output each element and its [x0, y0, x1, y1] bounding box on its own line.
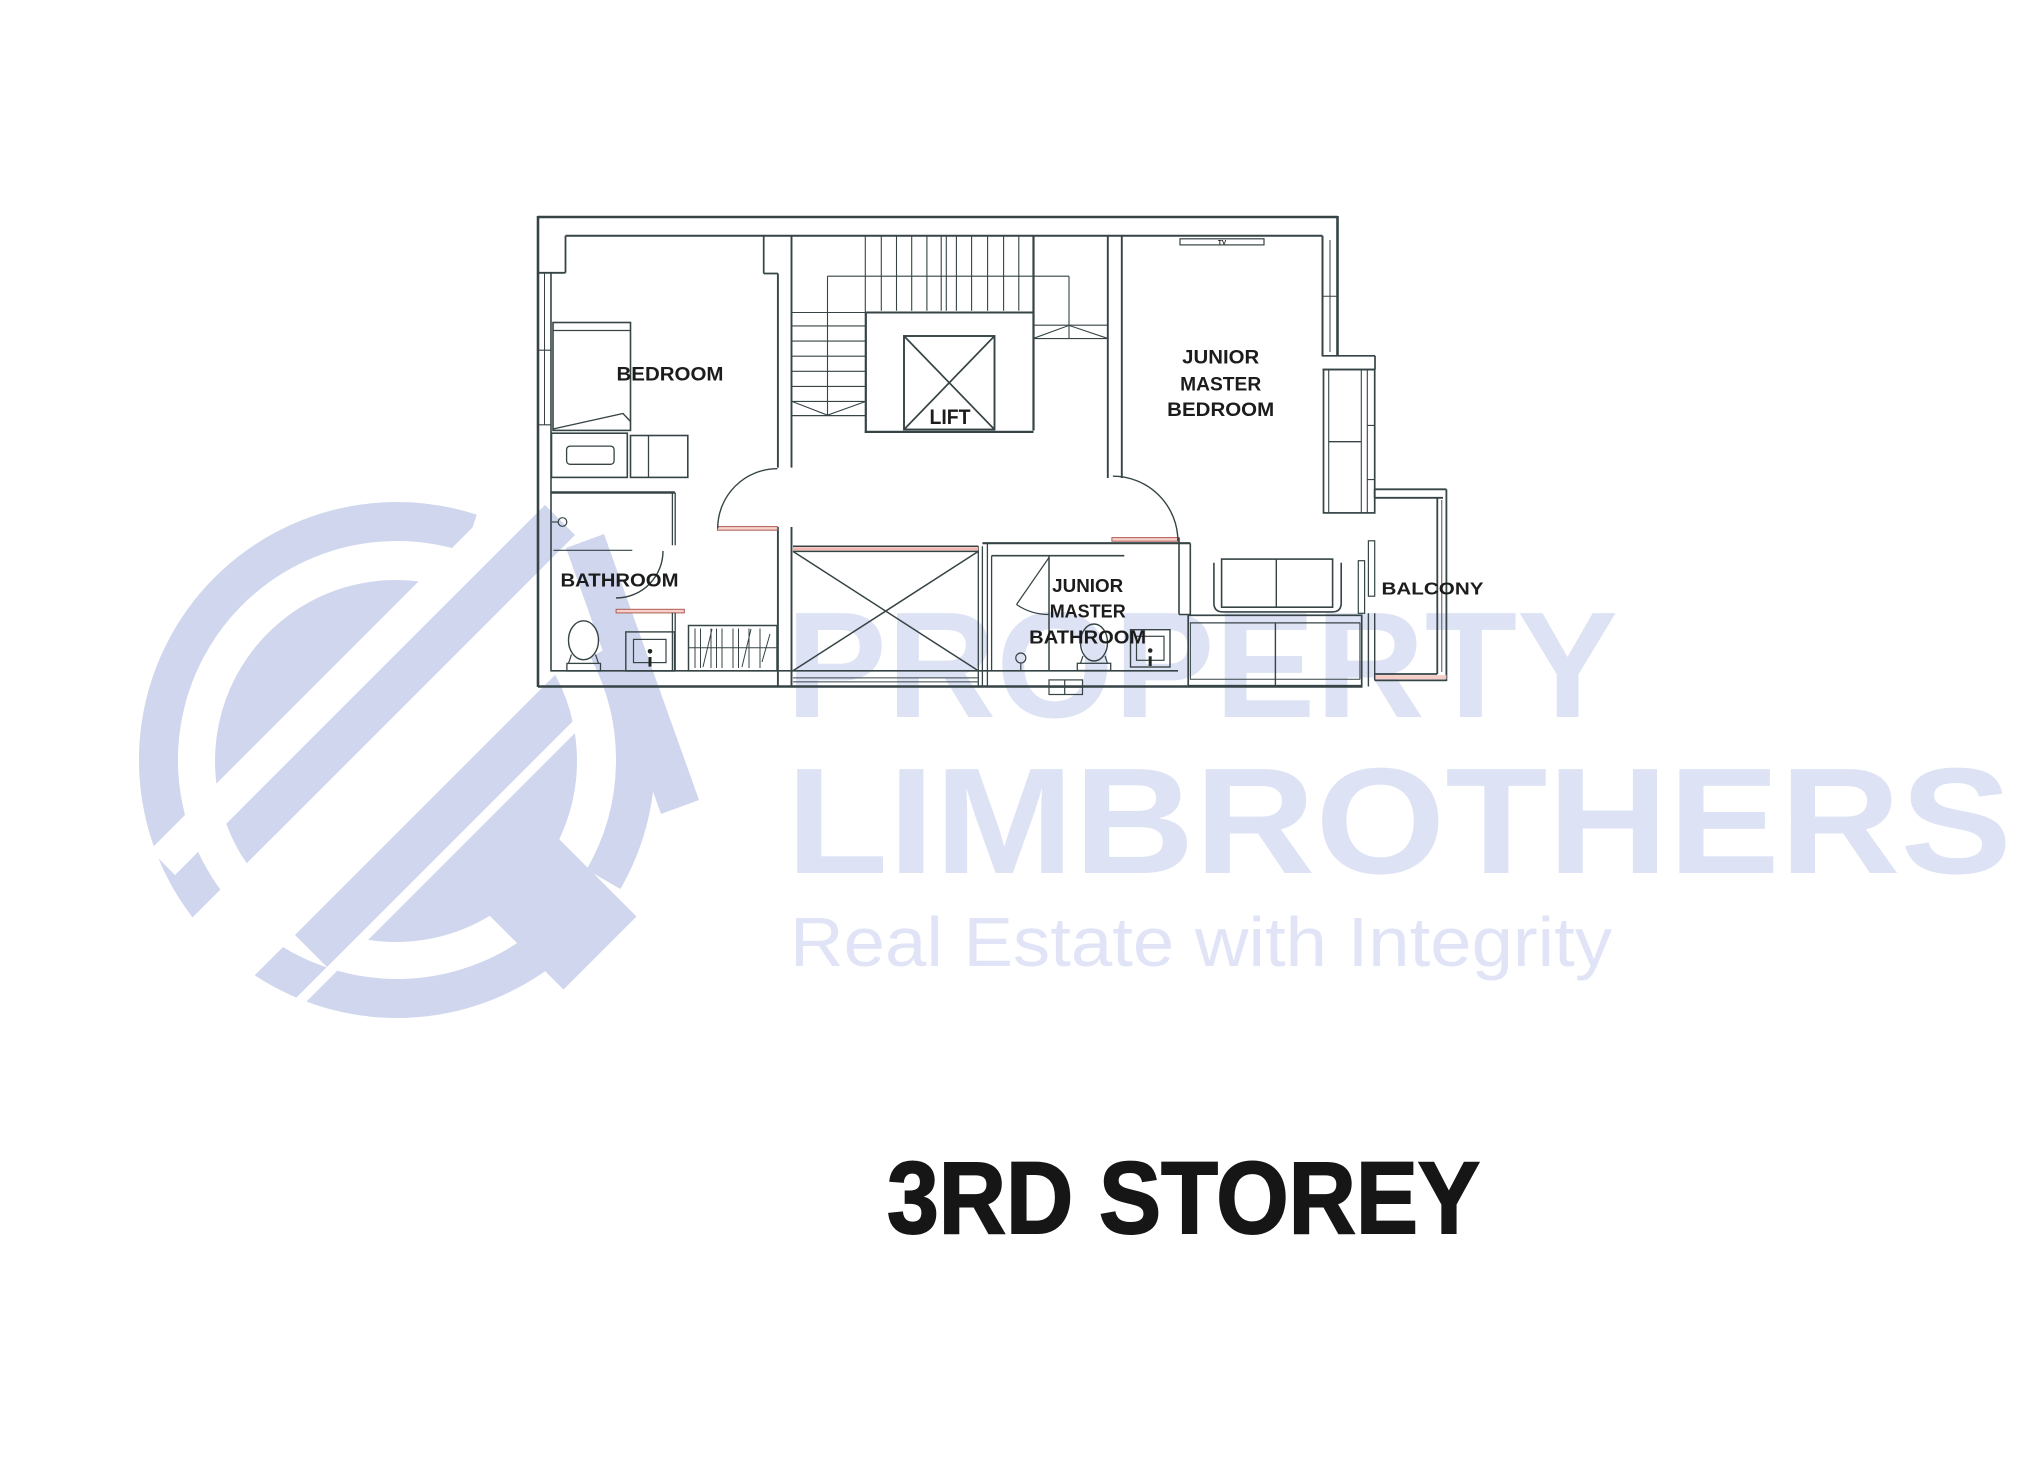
- svg-text:JUNIOR: JUNIOR: [1182, 348, 1259, 369]
- svg-text:BEDROOM: BEDROOM: [617, 365, 724, 386]
- svg-text:BATHROOM: BATHROOM: [1029, 628, 1146, 648]
- svg-text:BALCONY: BALCONY: [1382, 579, 1484, 599]
- svg-text:TV: TV: [1218, 239, 1227, 246]
- svg-text:BATHROOM: BATHROOM: [561, 570, 679, 591]
- svg-text:JUNIOR: JUNIOR: [1052, 576, 1123, 596]
- svg-text:Real Estate with Integrity: Real Estate with Integrity: [790, 903, 1612, 981]
- svg-text:LIMBROTHERS: LIMBROTHERS: [786, 736, 2012, 905]
- svg-text:MASTER: MASTER: [1050, 602, 1126, 622]
- svg-text:BEDROOM: BEDROOM: [1167, 400, 1274, 421]
- svg-text:PROPERTY: PROPERTY: [786, 580, 1618, 749]
- svg-text:LIFT: LIFT: [930, 406, 971, 429]
- svg-text:MASTER: MASTER: [1180, 375, 1261, 396]
- svg-text:3RD STOREY: 3RD STOREY: [887, 1141, 1480, 1255]
